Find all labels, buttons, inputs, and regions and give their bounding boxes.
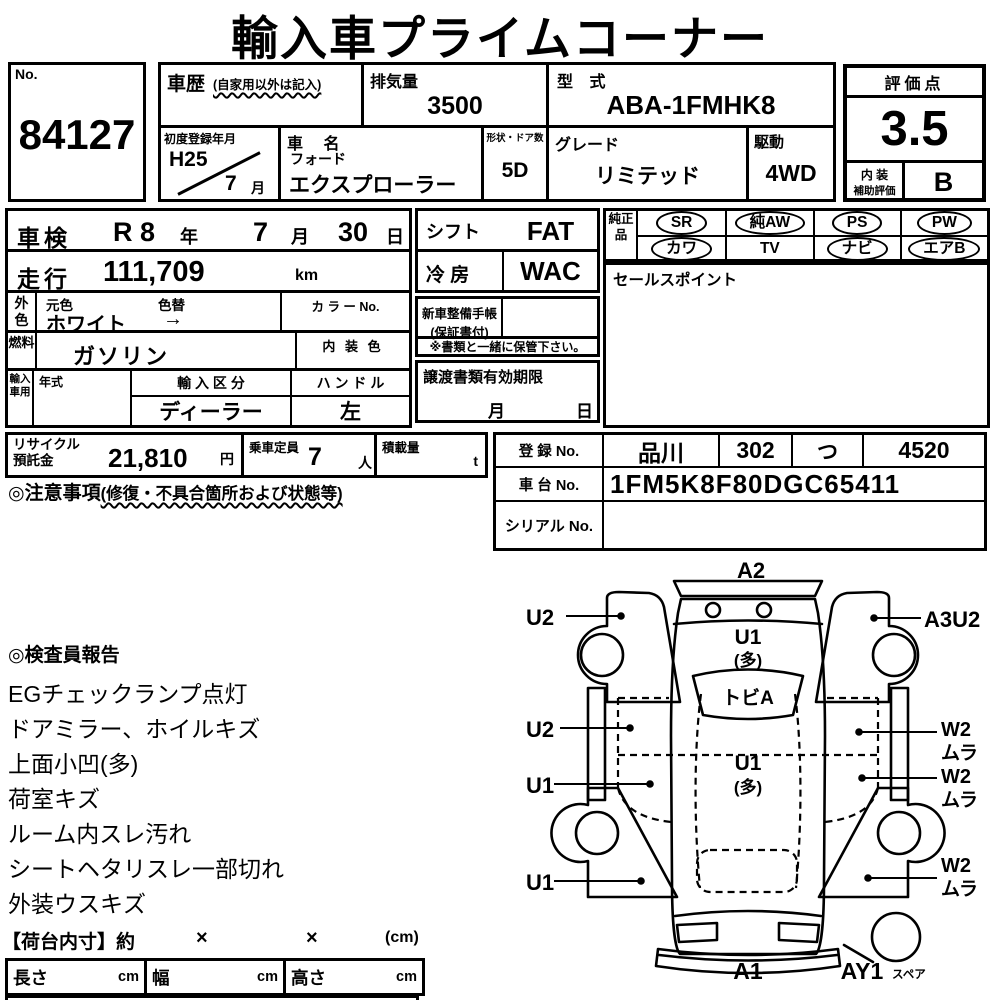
interior-rating-grade: B [905,163,982,201]
right-fender-panel [816,592,918,702]
registration-no-label: 登 録 No. [496,435,604,466]
displacement-label: 排気量 [370,68,418,92]
hood-crease [675,911,821,916]
transfer-docs-label: 譲渡書類有効期限 [423,366,543,387]
grade-label: グレード [555,131,619,155]
rating-score: 3.5 [847,98,982,160]
car-rear-spoiler [674,581,822,596]
report-line: 荷室キズ [8,782,488,817]
label-ay1: AY1 [841,958,884,984]
headlight-right [779,923,819,942]
cargo-dims-title: 【荷台内寸】約 [2,927,135,954]
shaken-era-year: R 8 [113,217,155,248]
shaken-day: 30 [338,217,368,248]
label-tailgate-u1-sub: (多) [734,650,762,670]
car-model: エクスプローラー [289,169,456,199]
shaken-year-unit: 年 [180,223,198,249]
drive-value: 4WD [749,158,833,188]
part-pw: PW [900,211,987,235]
report-line: EGチェックランプ点灯 [8,677,488,712]
import-side-label: 輸入車用 [8,371,34,425]
cargo-width-cell: 幅 cm [144,961,283,993]
first-registration-month-unit: 月 [251,178,265,198]
lot-number-box: No. 84127 [8,62,146,202]
cargo-times-1: × [196,927,208,950]
label-a3u2: A3U2 [924,607,980,632]
tailgate-hinge-right [757,603,771,617]
shaken-month: 7 [253,217,268,248]
right-quarter-panel [819,788,945,897]
rating-box: 評価点 3.5 内 装 補助評価 B [843,64,986,202]
import-division-value: ディーラー [132,397,290,425]
transfer-month-unit: 月 [488,397,505,422]
auction-sheet: 輸入車プライムコーナー No. 84127 車歴 (自家用以外は記入) 排気量 … [0,0,1000,1000]
cargo-height-cell: 高さ cm [283,961,422,993]
grade-value: リミテッド [549,160,746,190]
part-sr: SR [638,211,725,235]
label-u1-bottom: U1 [526,870,554,895]
report-line: 上面小凹(多) [8,747,488,782]
label-u2-top: U2 [526,605,554,630]
tailgate-crease [674,621,822,625]
leader-dot [626,724,634,732]
inspector-report-title: ◎検査員報告 [8,640,488,667]
spare-tire [872,913,920,961]
chassis-no-label: 車 台 No. [496,468,604,500]
left-fender-panel [578,592,680,702]
right-rear-wheel [878,812,920,854]
aircon-box: 冷 房 WAC [415,249,600,293]
vehicle-info-table: 車歴 (自家用以外は記入) 排気量 3500 型 式 ABA-1FMHK8 初度… [158,62,836,202]
shift-box: シフト FAT [415,208,600,252]
leader-dot [870,614,878,622]
registration-area: 品川 [604,435,718,466]
fuel-box: 燃料 ガソリン 内 装 色 [5,330,412,371]
history-cell: 車歴 (自家用以外は記入) [161,65,361,125]
transfer-docs-box: 譲渡書類有効期限 月 日 [415,360,600,423]
mileage-box: 走行 111,709 km [5,249,412,293]
leader-dot [864,874,872,882]
left-rear-wheel [576,812,618,854]
label-mura-1: ムラ [941,743,978,764]
shift-label: シフト [426,218,480,244]
genuine-parts-box: 純正品 SR 純AW PS PW カワ TV ナビ エアB [603,208,990,262]
first-registration-month: 7 [225,172,237,196]
history-label: 車歴 [167,69,205,96]
label-mura-2: ムラ [941,790,978,811]
body-doors-cell: 形状・ドア数 5D [481,125,546,199]
drive-label: 駆動 [754,131,784,152]
report-line: シートヘタリスレ一部切れ [8,852,488,887]
registration-class: 302 [718,435,791,466]
leader-dot [855,728,863,736]
color-no-cell: カ ラ ー No. [280,293,409,330]
leader-dot [858,774,866,782]
aircon-label: 冷 房 [426,260,469,287]
recycle-value: 21,810 [108,443,188,474]
part-aw: 純AW [725,211,812,235]
rating-label: 評価点 [847,68,982,98]
transfer-day-unit: 日 [576,397,593,422]
color-no-label: カ ラ ー No. [282,293,409,315]
steering-label: ハ ン ド ル [292,371,409,397]
part-airb: エアB [900,235,987,261]
label-roof-u1: U1 [735,752,762,775]
divider [374,435,377,475]
label-a2: A2 [737,558,765,583]
serial-no-label: シリアル No. [496,502,604,548]
mileage-label: 走行 [17,260,71,294]
caution-heading: ◎注意事項 [8,483,101,504]
label-mura-3: ムラ [941,879,978,900]
lot-number-label: No. [15,66,38,82]
inspector-report: ◎検査員報告 EGチェックランプ点灯 ドアミラー、ホイルキズ 上面小凹(多) 荷… [8,640,488,922]
serial-no-value [604,502,984,548]
mileage-value: 111,709 [103,256,205,289]
registration-kana: つ [791,435,862,466]
exterior-color-side-label: 外色 [8,293,37,330]
label-u1-mid: U1 [526,773,554,798]
fuel-side-label: 燃料 [8,333,37,368]
cargo-dims-row: 長さ cm 幅 cm 高さ cm [5,958,425,996]
service-book-label: 新車整備手帳 (保証書付) [418,299,503,336]
right-front-wheel [873,634,915,676]
leader-dot [646,780,654,788]
body-doors-value: 5D [484,156,546,186]
label-w2-2: W2 [941,766,971,788]
first-registration-year: H25 [169,148,208,172]
part-tv: TV [725,235,812,261]
recycle-box: リサイクル 預託金 21,810 円 乗車定員 7 人 積載量 t [5,432,488,478]
genuine-parts-label: 純正品 [606,211,638,259]
fuel-value: ガソリン [73,339,169,371]
genuine-parts-grid: SR 純AW PS PW カワ TV ナビ エアB [638,211,987,259]
label-w2-1: W2 [941,719,971,741]
service-book-box: 新車整備手帳 (保証書付) [415,296,600,339]
lot-number-value: 84127 [11,95,143,175]
recycle-unit: 円 [220,449,234,469]
load-label: 積載量 [382,437,420,456]
shaken-box: 車検 R 8 年 7 月 30 日 [5,208,412,252]
shaken-month-unit: 月 [291,223,309,249]
load-unit: t [473,453,478,469]
windshield-dash [697,850,797,892]
headlight-left [677,923,717,942]
part-navi: ナビ [813,235,900,261]
label-w2-3: W2 [941,855,971,877]
recycle-label: リサイクル 預託金 [13,437,80,469]
damage-diagram: A2 U2 A3U2 U1 (多) トビA U2 W2 ムラ U1 U1 (多)… [500,555,1000,1000]
tailgate-hinge-left [706,603,720,617]
car-name-cell: 車 名 フォード エクスプローラー [278,125,481,199]
drive-cell: 駆動 4WD [746,125,833,199]
first-registration-label: 初度登録年月 [164,130,236,147]
displacement-cell: 排気量 3500 [361,65,546,125]
first-registration-cell: 初度登録年月 H25 7 月 [161,125,278,199]
chassis-no-value: 1FM5K8F80DGC65411 [604,468,984,500]
grade-cell: グレード リミテッド [546,125,746,199]
car-maker: フォード [290,149,346,169]
report-line: 外装ウスキズ [8,887,488,922]
part-kawa: カワ [638,235,725,261]
import-year-label: 年式 [39,373,63,390]
interior-rating-label: 内 装 補助評価 [847,163,905,201]
displacement-value: 3500 [364,91,546,121]
sales-point-label: セールスポイント [613,268,737,290]
label-spare: スペア [892,968,926,981]
cargo-next-row-partial [5,995,419,1000]
part-ps: PS [813,211,900,235]
color-change-arrow: → [163,308,183,331]
storage-note: ※書類と一緒に保管下さい。 [415,336,600,357]
body-doors-label: 形状・ドア数 [484,130,546,144]
import-division-label: 輸 入 区 分 [132,371,290,397]
report-line: ドアミラー、ホイルキズ [8,712,488,747]
leader-dot [637,877,645,885]
leader-dot [617,612,625,620]
seating-value: 7 [308,443,322,472]
exterior-color-box: 外色 元色 色替 ホワイト → カ ラ ー No. [5,290,412,333]
registration-table: 登 録 No. 品川 302 つ 4520 車 台 No. 1FM5K8F80D… [493,432,987,551]
caution-line: ◎注意事項(修復・不具合箇所および状態等) [8,478,343,505]
door-section-dash [618,788,671,822]
cargo-times-2: × [306,927,318,950]
history-note: (自家用以外は記入) [213,74,321,93]
model-code-cell: 型 式 ABA-1FMHK8 [546,65,833,125]
label-u2-mid: U2 [526,717,554,742]
shift-value: FAT [508,216,593,246]
seating-label: 乗車定員 [249,437,299,456]
shaken-day-unit: 日 [386,223,404,249]
import-box: 輸入車用 年式 輸 入 区 分 ディーラー ハ ン ド ル 左 [5,368,412,428]
label-a1: A1 [733,958,763,984]
page-title: 輸入車プライムコーナー [0,0,1000,58]
mileage-unit: km [295,267,318,285]
cargo-length-cell: 長さ cm [8,961,144,993]
shaken-label: 車検 [17,219,71,253]
left-front-wheel [581,634,623,676]
steering-value: 左 [292,397,409,425]
divider [241,435,244,475]
door-section-dash [825,788,878,822]
label-rear-glass: トビA [722,687,774,709]
seating-unit: 人 [358,453,372,473]
registration-number: 4520 [862,435,984,466]
caution-detail: (修復・不具合箇所および状態等) [101,485,343,503]
report-line: ルーム内スレ汚れ [8,817,488,852]
label-tailgate-u1: U1 [735,626,762,649]
cargo-unit: (cm) [385,929,419,947]
label-roof-u1-sub: (多) [734,777,762,797]
sales-point-box: セールスポイント [603,262,990,428]
interior-color-label: 内 装 色 [297,333,409,355]
right-sill-strip [891,688,908,800]
model-code-value: ABA-1FMHK8 [549,89,833,121]
steering-cell: ハ ン ド ル 左 [290,371,409,425]
aircon-value: WAC [502,252,597,290]
interior-color-cell: 内 装 色 [295,333,409,368]
import-division-cell: 輸 入 区 分 ディーラー [130,371,290,425]
import-year-cell: 年式 [34,371,130,425]
